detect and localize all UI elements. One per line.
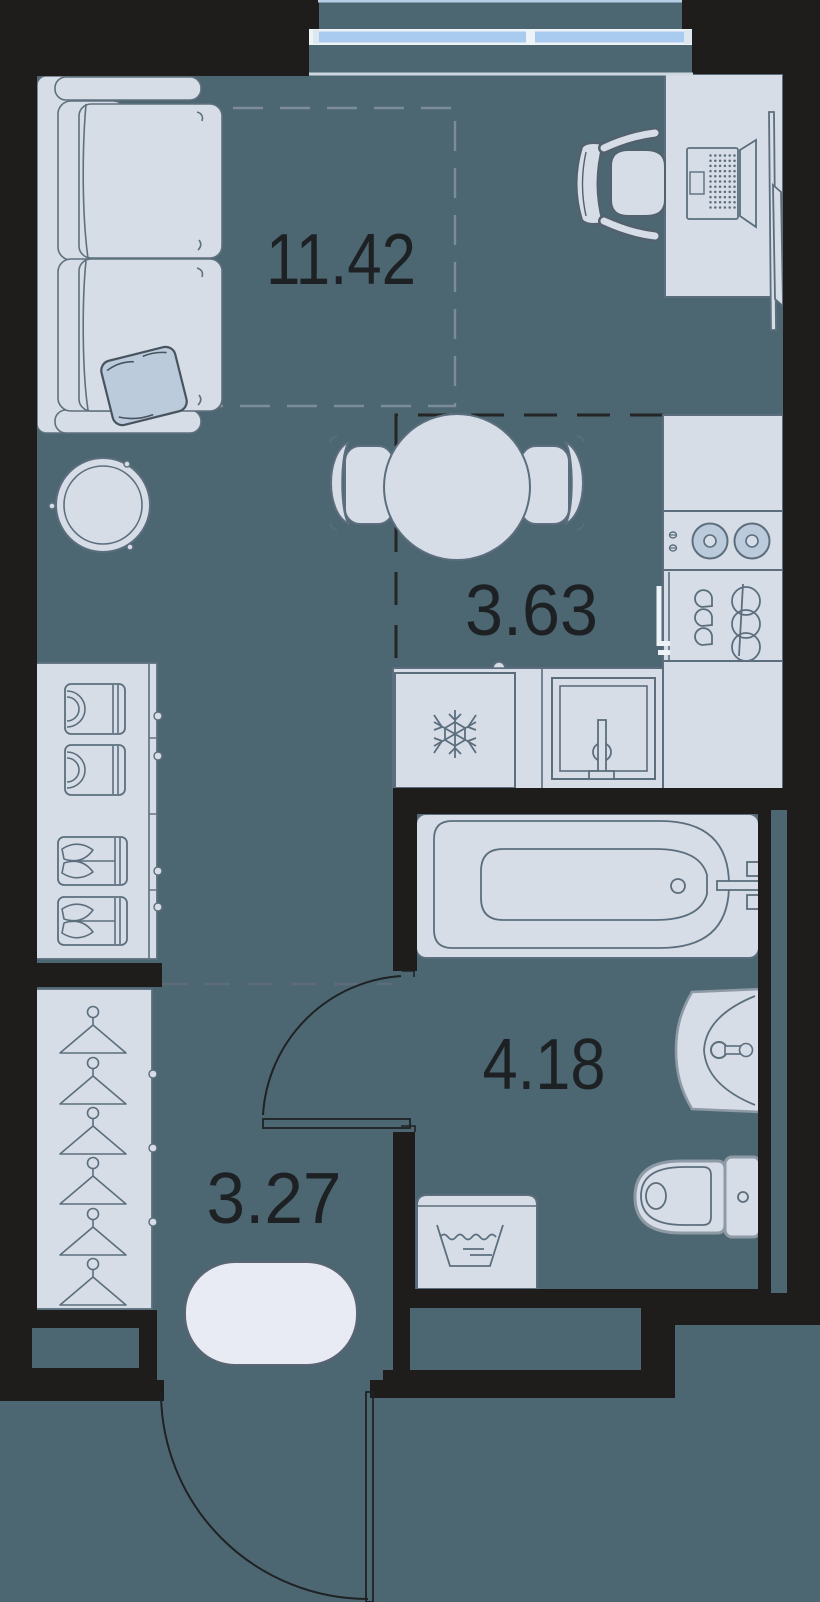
svg-text:4.18: 4.18 [483, 1024, 606, 1105]
svg-text:3.63: 3.63 [465, 570, 598, 651]
svg-text:11.42: 11.42 [266, 219, 416, 300]
svg-text:3.27: 3.27 [207, 1158, 342, 1239]
